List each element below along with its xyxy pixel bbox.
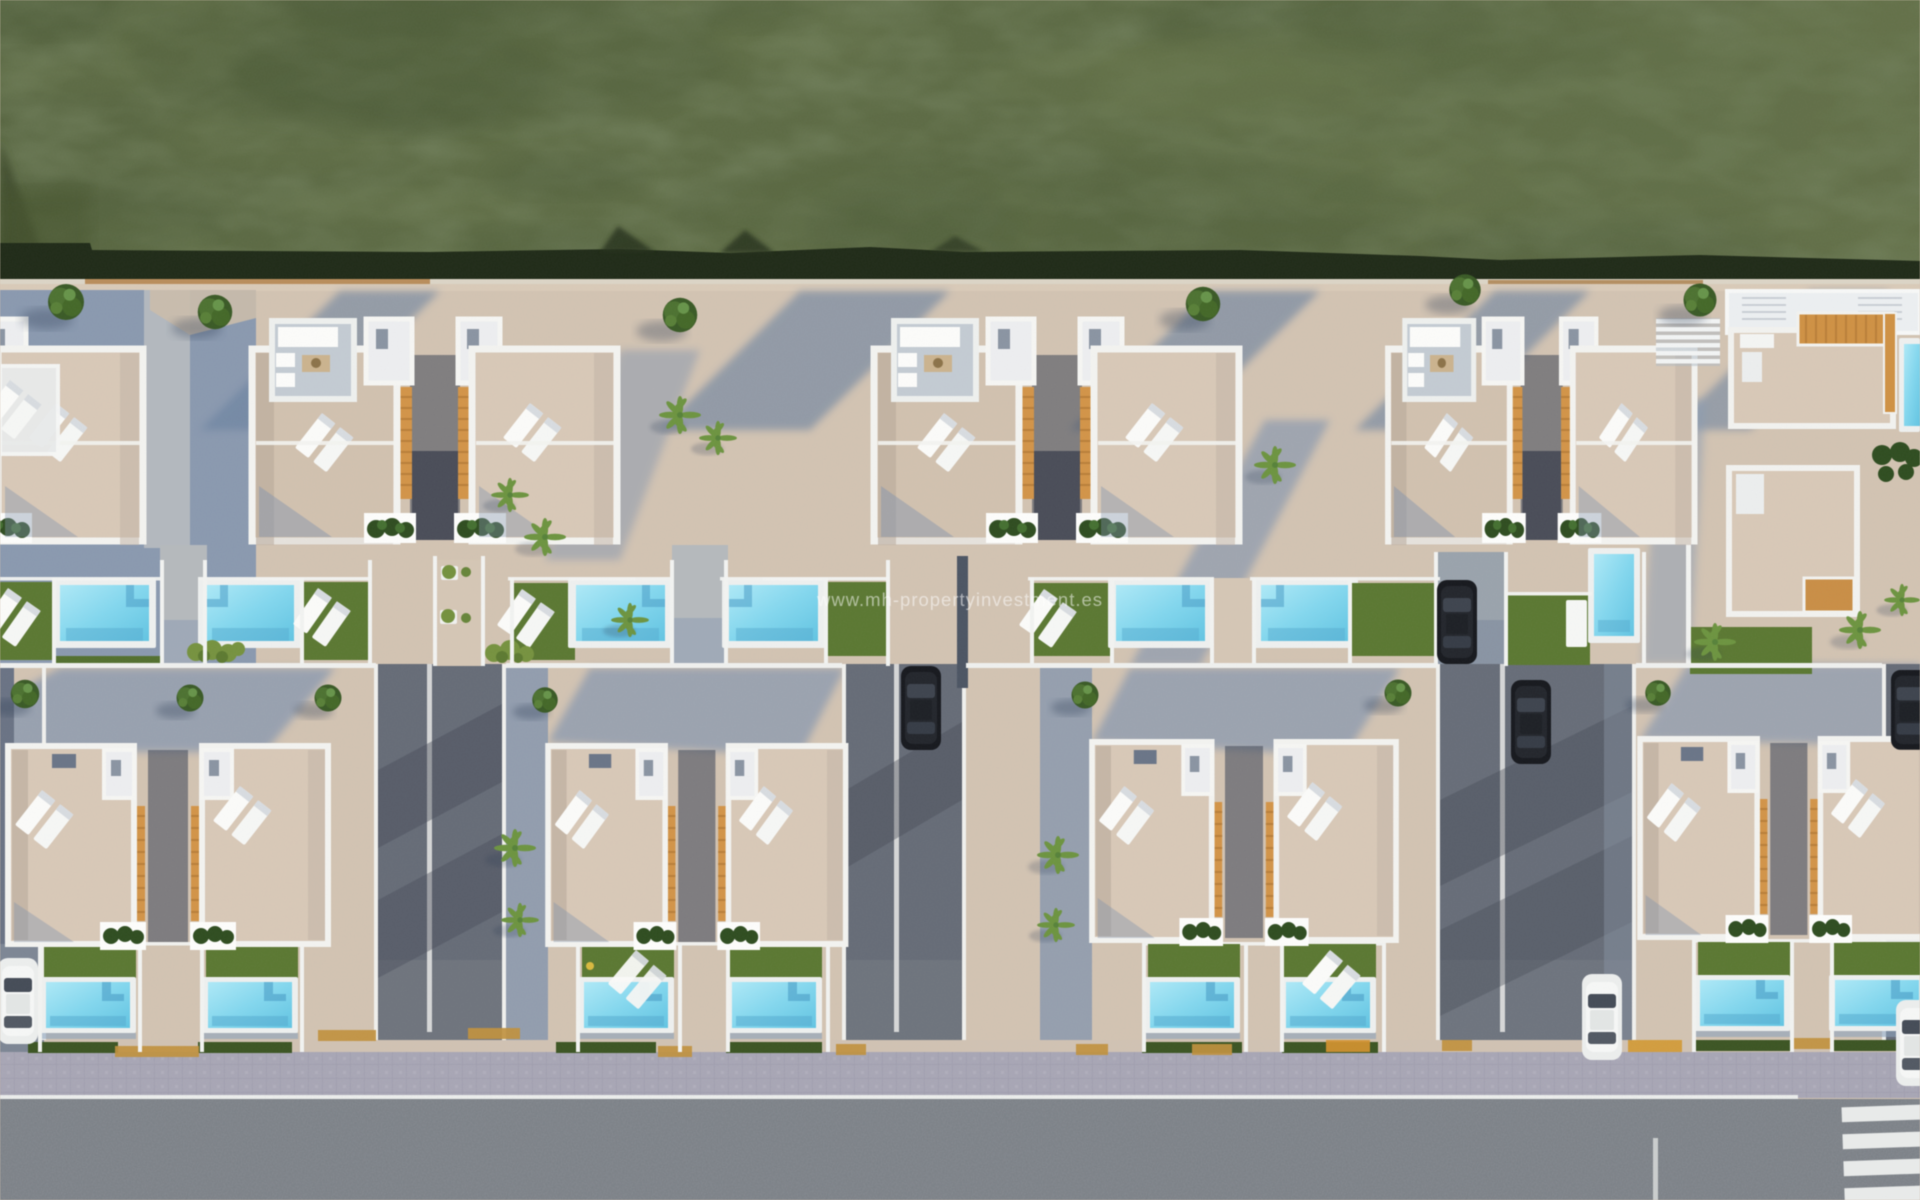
svg-text:www.mh-propertyinvestment.es: www.mh-propertyinvestment.es: [816, 589, 1103, 610]
